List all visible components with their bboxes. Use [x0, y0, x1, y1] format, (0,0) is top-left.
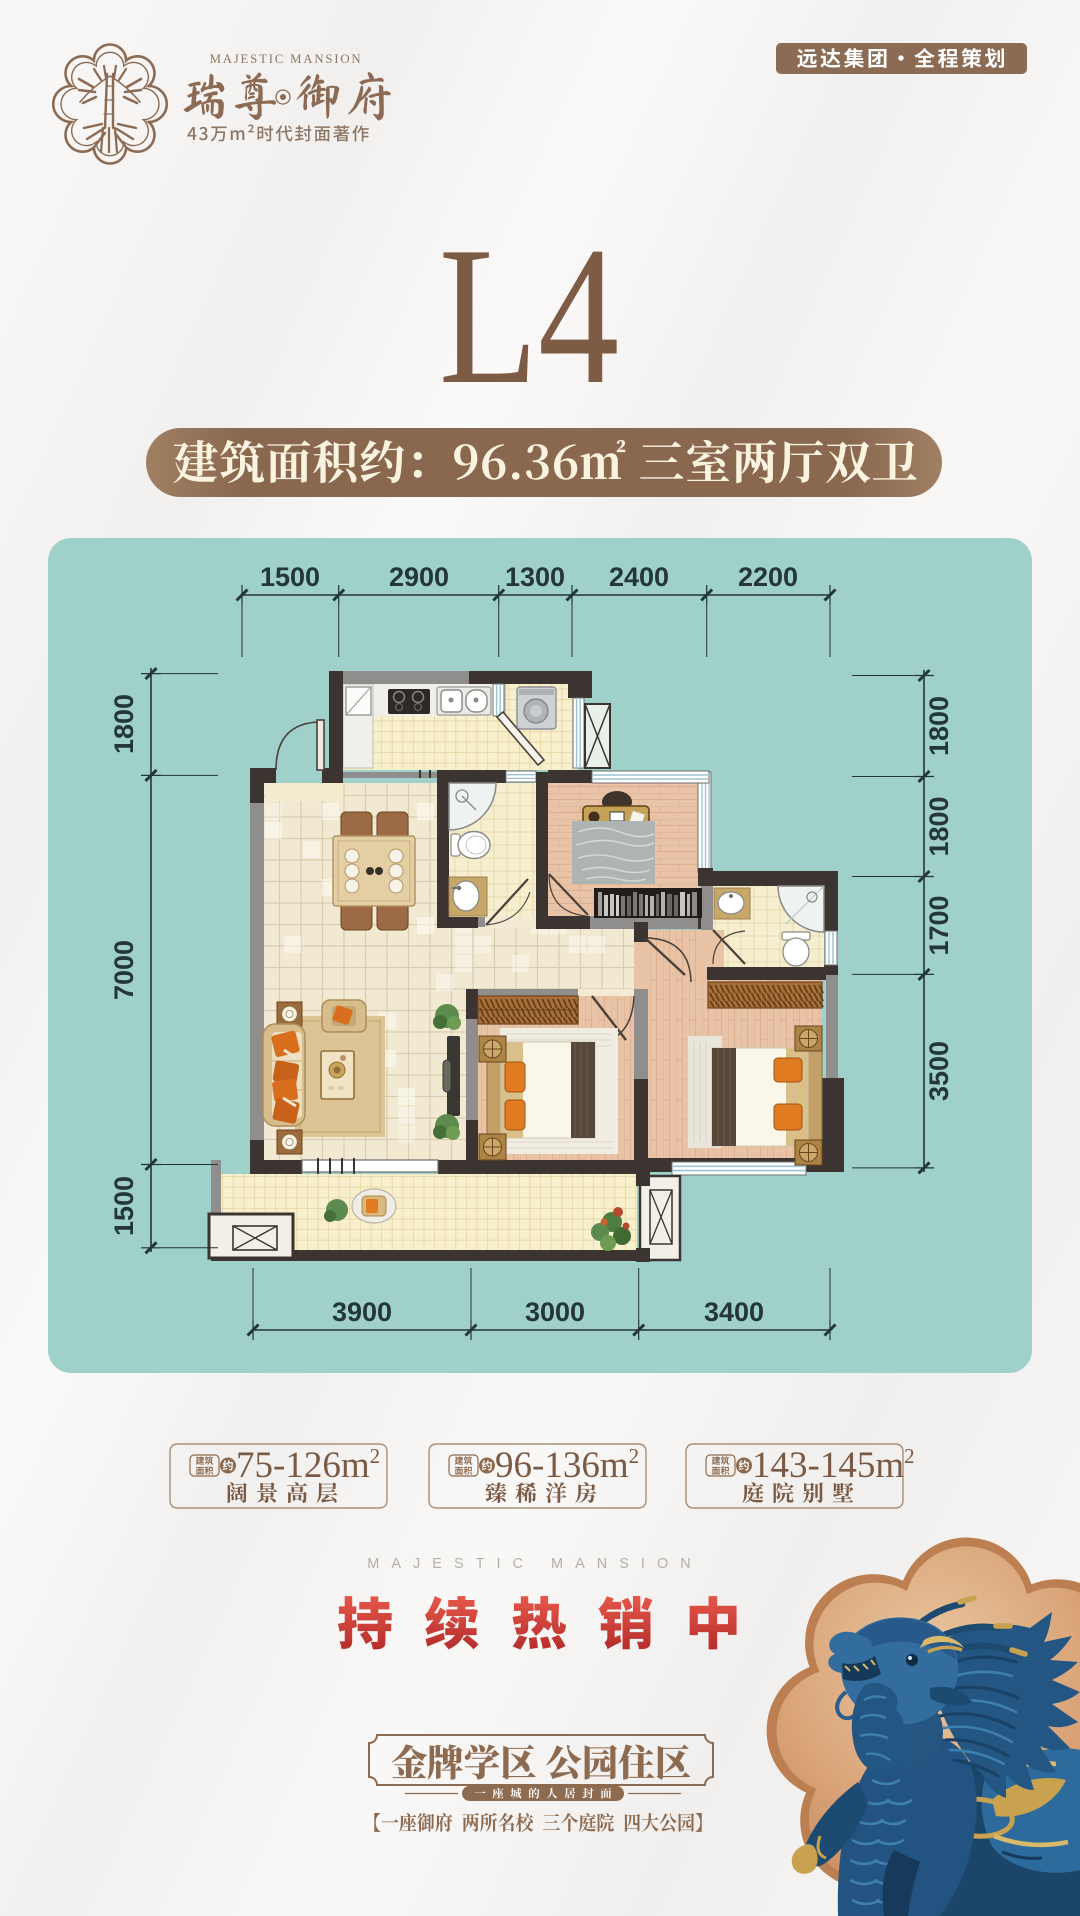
svg-text:3400: 3400: [704, 1297, 764, 1327]
svg-text:1800: 1800: [924, 696, 954, 756]
svg-text:MAJESTIC MANSION: MAJESTIC MANSION: [210, 52, 363, 66]
svg-text:143-145m2: 143-145m2: [752, 1444, 915, 1486]
svg-text:2900: 2900: [389, 562, 449, 592]
svg-text:3500: 3500: [924, 1041, 954, 1101]
svg-text:L4: L4: [439, 207, 619, 426]
svg-text:1500: 1500: [109, 1176, 139, 1236]
svg-text:1800: 1800: [924, 796, 954, 856]
svg-text:2400: 2400: [609, 562, 669, 592]
svg-text:96-136m2: 96-136m2: [495, 1444, 639, 1486]
svg-text:MAJESTIC MANSION: MAJESTIC MANSION: [367, 1556, 702, 1572]
svg-text:3000: 3000: [525, 1297, 585, 1327]
svg-text:1300: 1300: [505, 562, 565, 592]
svg-text:1700: 1700: [924, 895, 954, 955]
svg-text:3900: 3900: [332, 1297, 392, 1327]
svg-text:75-126m2: 75-126m2: [236, 1444, 380, 1486]
svg-text:2200: 2200: [738, 562, 798, 592]
svg-text:7000: 7000: [109, 940, 139, 1000]
svg-text:1800: 1800: [109, 694, 139, 754]
svg-text:1500: 1500: [260, 562, 320, 592]
